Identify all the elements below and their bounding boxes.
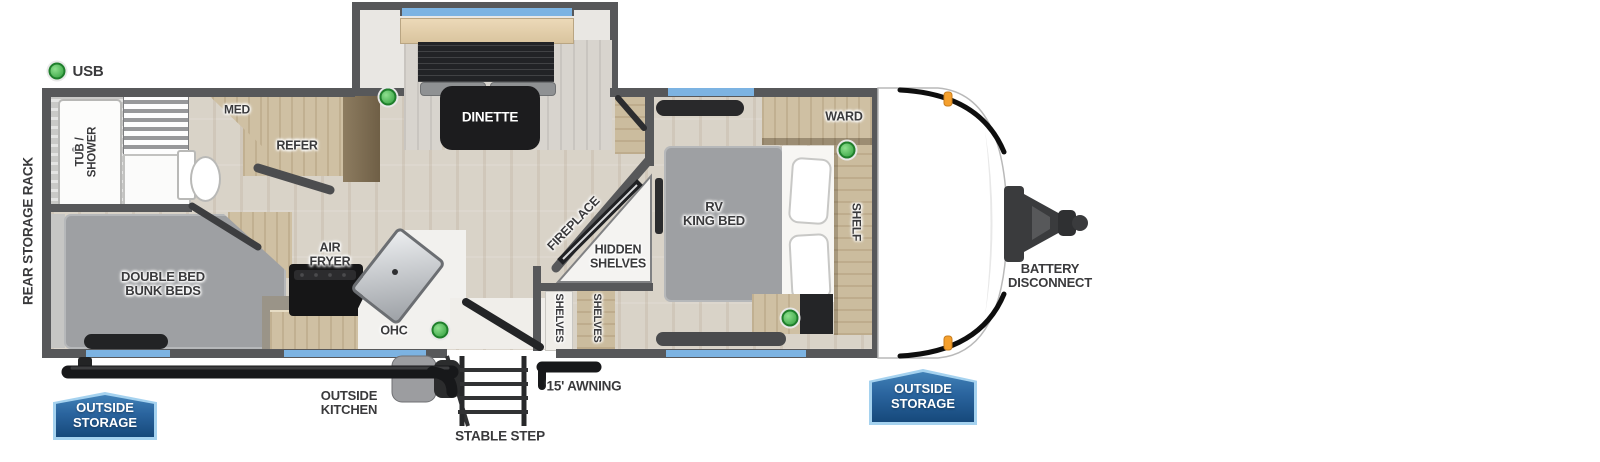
overlay-graphics: [0, 0, 1600, 462]
usb-dot-bedroom-ward: [839, 142, 856, 159]
refer-front-edge: [258, 168, 330, 190]
air-fryer-label: AIR FRYER: [310, 242, 351, 269]
shelves-right-label: SHELVES: [590, 293, 602, 342]
tongue-jack: [1004, 186, 1024, 262]
entry-door: [466, 302, 540, 347]
rear-storage-rack-label: REAR STORAGE RACK: [22, 157, 37, 305]
shelf-label: SHELF: [850, 203, 863, 241]
coupler-ball: [1072, 215, 1088, 231]
tub-shower-label: TUB / SHOWER: [75, 127, 100, 178]
stable-step-label: STABLE STEP: [455, 430, 545, 445]
shelves-left-label: SHELVES: [552, 293, 564, 342]
usb-dot-kitchen: [432, 322, 449, 339]
battery-disconnect-label: BATTERY DISCONNECT: [1008, 262, 1092, 290]
outside-storage-badge-left: OUTSIDE STORAGE: [53, 392, 157, 440]
slide-cabinet-accent: [618, 98, 644, 128]
dinette-label: DINETTE: [462, 111, 518, 126]
marker-light-top: [944, 92, 952, 106]
usb-dot-bedroom-nightstand: [782, 310, 799, 327]
ohc-label: OHC: [380, 324, 407, 338]
awning-label: 15' AWNING: [547, 380, 622, 395]
outside-storage-badge-right: OUTSIDE STORAGE: [869, 369, 977, 425]
outside-kitchen-griddle: [392, 356, 436, 402]
usb-dot-dinette: [380, 89, 397, 106]
usb-dot-legend: [49, 63, 66, 80]
hidden-shelves-label: HIDDEN SHELVES: [590, 244, 646, 271]
usb-legend-label: USB: [72, 64, 103, 80]
med-label: MED: [224, 104, 250, 117]
marker-light-bottom: [944, 336, 952, 350]
bathroom-door: [192, 206, 258, 247]
outside-storage-right-label: OUTSIDE STORAGE: [891, 382, 955, 411]
floorplan-canvas: USB REAR STORAGE RACK TUB / SHOWER MED R…: [0, 0, 1600, 462]
outside-storage-left-label: OUTSIDE STORAGE: [73, 401, 137, 430]
rv-king-bed-label: RV KING BED: [683, 200, 745, 228]
outside-kitchen-label: OUTSIDE KITCHEN: [321, 389, 377, 417]
double-bunk-label: DOUBLE BED BUNK BEDS: [121, 270, 205, 298]
refer-label: REFER: [276, 139, 317, 153]
ward-label: WARD: [825, 110, 862, 124]
